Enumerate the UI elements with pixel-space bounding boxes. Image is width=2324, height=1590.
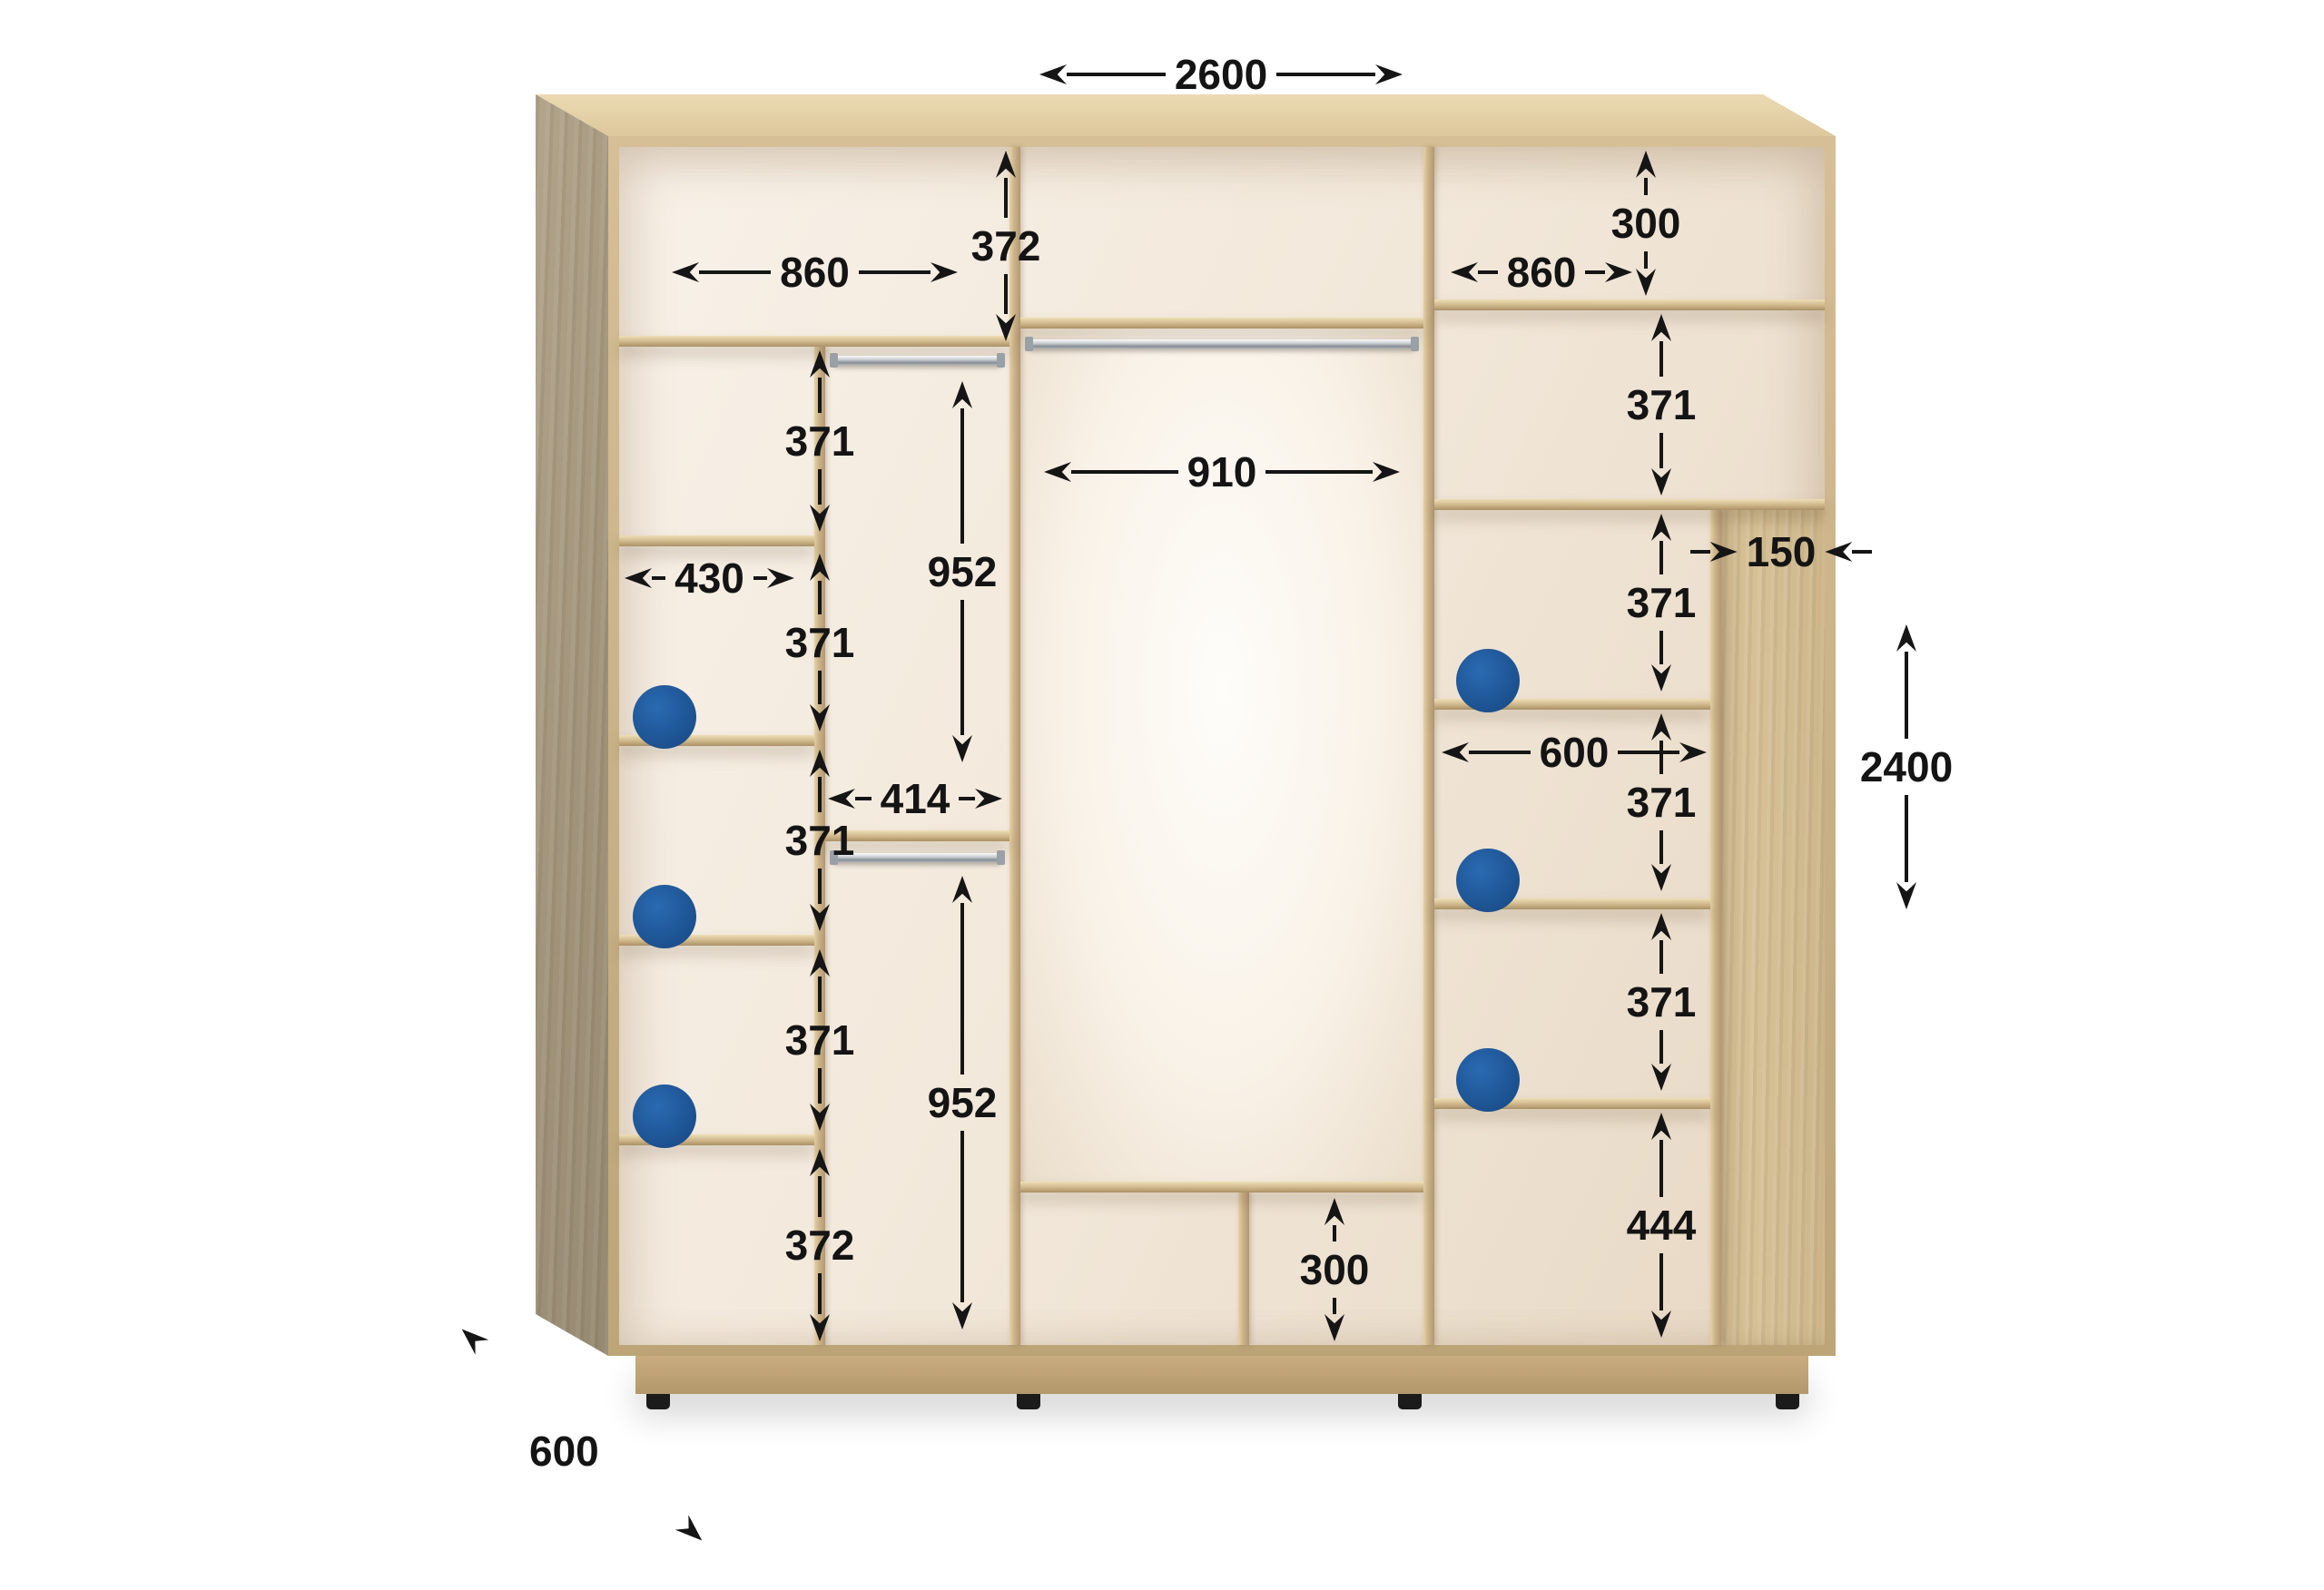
dimension-line [1659,631,1663,664]
dimension-value: 300 [1300,1242,1370,1298]
blue-marker-circle [1456,849,1520,912]
shelf-left-top [619,336,1009,347]
dim-left-top-width: 860 [672,251,958,293]
dim-left-shelf-3-height: 371 [799,750,841,931]
dimension-line [1004,178,1008,218]
hanging-rod-left-upper [832,356,1002,365]
arrow-head-left [1442,742,1469,762]
blue-marker-circle [633,885,696,948]
dimension-line [859,270,931,274]
dimension-line [753,576,767,580]
dimension-line [818,1273,822,1314]
arrow-head-up [810,949,830,977]
dim-left-shelf-2-height: 371 [799,554,841,731]
dim-right-narrow-col-width: 150 [1690,531,1872,573]
divider-middle-bottom [1238,1192,1249,1345]
arrow-head-up [1651,713,1671,741]
arrow-head-down [996,314,1016,341]
dim-left-hanging-lower-height: 952 [941,876,983,1330]
dimension-line [1276,73,1375,76]
dimension-line [855,797,871,800]
dimension-value: 371 [1627,377,1697,433]
dimension-value: 444 [1627,1197,1697,1253]
hanging-rod-left-lower [832,853,1002,862]
arrow-head-right [767,568,794,588]
dim-left-top-height: 372 [985,151,1027,341]
dimension-value: 952 [928,544,998,600]
dimension-line [1644,178,1648,195]
dim-right-shelf-3-height: 371 [1640,713,1682,891]
arrow-head-right [1373,462,1400,482]
dimension-value: 2600 [1166,54,1276,95]
dimension-line [1004,274,1008,314]
dimension-value: 600 [1531,731,1619,773]
dimension-line [1852,550,1872,554]
arrow-head-down [1896,882,1916,909]
dim-right-shelf-4-height: 371 [1640,913,1682,1091]
arrow-head-up [810,750,830,777]
divider-right-narrow-column [1710,510,1721,1345]
dim-depth-value: 600 [529,1430,599,1472]
arrow-head-down [810,704,830,731]
dim-middle-bottom-height: 300 [1314,1198,1355,1341]
arrow-head-up [952,381,972,408]
shelf-middle-top [1020,318,1423,329]
arrow-head-right [1710,542,1738,562]
dim-depth-arrow-down [607,1454,710,1549]
dimension-line [652,576,665,580]
arrow-head-right [1679,742,1707,762]
dimension-value: 2400 [1860,739,1953,795]
dimension-line [818,869,822,904]
cabinet-top-panel [532,91,1839,140]
arrow-head-down-right [675,1515,709,1547]
dimension-line [818,671,822,704]
shelf-right-1 [1434,499,1825,510]
arrow-head-up [1636,151,1656,178]
dim-left-hanging-upper-height: 952 [941,381,983,762]
dimension-value: 430 [665,557,753,599]
dimension-line [1659,541,1663,574]
dimension-value: 910 [1178,451,1266,493]
dimension-line [818,777,822,812]
divider-middle-right [1423,147,1434,1345]
dimension-line [1659,940,1663,974]
shelf-middle-bottom [1020,1182,1423,1192]
dimension-line [818,378,822,413]
arrow-head-right [1375,64,1403,84]
dim-depth-arrow-up [455,1321,557,1417]
cabinet-plinth [635,1356,1808,1394]
arrow-head-up [1651,913,1671,940]
adjustable-foot [1017,1394,1040,1409]
blue-marker-circle [633,685,696,749]
dim-left-shelf-5-height: 372 [799,1149,841,1341]
dim-right-top-width: 860 [1451,251,1632,293]
dimension-value: 371 [1627,974,1697,1030]
dimension-line [1659,830,1663,864]
dimension-line [1659,1030,1663,1064]
dimension-line [1659,433,1663,468]
dimension-line [1659,341,1663,377]
blue-marker-circle [633,1085,696,1148]
arrow-head-down [1651,664,1671,692]
dimension-line [960,600,964,735]
dimension-line [1905,652,1908,739]
shelf-left-1 [619,535,814,546]
dimension-value: 371 [785,1012,855,1068]
arrow-head-down [1651,1310,1671,1338]
arrow-head-up [810,554,830,581]
dim-left-hanging-col-width: 414 [828,778,1002,820]
dimension-line [1071,470,1178,474]
dimension-value: 371 [1627,574,1697,631]
dim-left-shelf-col-width: 430 [625,557,794,599]
arrow-head-down [1651,468,1671,496]
dimension-line [818,1176,822,1217]
arrow-head-left [1825,542,1852,562]
dimension-value: 372 [785,1217,855,1273]
dimension-line [1333,1298,1336,1314]
dim-left-shelf-1-height: 371 [799,350,841,532]
adjustable-foot [1776,1394,1799,1409]
arrow-head-up [1324,1198,1344,1225]
dimension-line [1659,1140,1663,1197]
dim-middle-width: 910 [1044,451,1400,493]
arrow-head-up [952,876,972,903]
dimension-line [1265,470,1373,474]
adjustable-foot [646,1394,670,1409]
cabinet-left-side-panel [532,91,609,1359]
dimension-line [818,1068,822,1104]
dim-overall-width: 2600 [1039,54,1403,95]
arrow-head-down [1636,269,1656,296]
arrow-head-up [810,1149,830,1176]
dimension-line [818,977,822,1012]
arrow-head-right [975,789,1002,809]
dimension-value: 952 [928,1075,998,1131]
arrow-head-up [1651,514,1671,541]
dim-right-top-height: 300 [1625,151,1667,296]
dim-right-shelf-5-height: 444 [1640,1113,1682,1338]
arrow-head-left [828,789,855,809]
dimension-line [615,1462,682,1523]
arrow-head-up [996,151,1016,178]
arrow-head-left [1044,462,1071,482]
arrow-head-down [1651,1064,1671,1091]
arrow-head-down [952,1302,972,1330]
right-narrow-column-back [1721,510,1825,1345]
arrow-head-up [810,350,830,378]
dimension-line [1644,251,1648,269]
dimension-value: 150 [1738,531,1826,573]
arrow-head-left [672,262,699,282]
dimension-line [1659,741,1663,774]
arrow-head-down [1324,1314,1344,1341]
arrow-head-left [625,568,652,588]
adjustable-foot [1398,1394,1422,1409]
arrow-head-up [1896,624,1916,652]
dimension-value: 414 [871,778,960,820]
arrow-head-up [1651,314,1671,341]
dimension-line [1067,73,1166,76]
dimension-line [1585,270,1605,274]
dimension-line [699,270,771,274]
dimension-value: 300 [1611,195,1681,251]
dimension-value: 371 [785,812,855,869]
arrow-head-up [1651,1113,1671,1140]
arrow-head-down [810,505,830,532]
dim-right-full-shelf-height: 371 [1640,314,1682,496]
dimension-line [1905,795,1908,882]
arrow-head-up-left [455,1321,488,1354]
dimension-value: 860 [1498,251,1586,293]
arrow-head-down [952,735,972,762]
arrow-head-down [810,904,830,931]
dim-right-shelf-2-height: 371 [1640,514,1682,692]
dim-left-shelf-4-height: 371 [799,949,841,1131]
dimension-line [1690,550,1710,554]
dimension-line [1469,751,1531,754]
dimension-line [960,408,964,544]
dimension-value: 371 [785,614,855,671]
wardrobe-dimension-diagram: 2600 860 372 371 430 371 371 371 372 [0,0,2324,1590]
dimension-line [818,469,822,505]
arrow-head-right [931,262,958,282]
dimension-line [959,797,975,800]
arrow-head-down [1651,864,1671,891]
dimension-line [482,1348,549,1408]
shelf-right-top [1434,299,1825,310]
hanging-rod-middle [1028,339,1416,348]
dimension-line [1659,1253,1663,1310]
blue-marker-circle [1456,649,1520,712]
dim-overall-height: 2400 [1886,624,1927,927]
dimension-line [960,903,964,1075]
arrow-head-down [810,1104,830,1131]
blue-marker-circle [1456,1048,1520,1112]
dimension-line [960,1131,964,1302]
dimension-value: 372 [971,218,1041,274]
dimension-line [1478,270,1498,274]
dimension-line [818,581,822,614]
dimension-value: 860 [771,251,859,293]
arrow-head-left [1039,64,1067,84]
dimension-value: 371 [785,413,855,469]
dimension-line [1333,1225,1336,1242]
arrow-head-down [810,1314,830,1341]
arrow-head-left [1451,262,1478,282]
dimension-value: 371 [1627,774,1697,830]
